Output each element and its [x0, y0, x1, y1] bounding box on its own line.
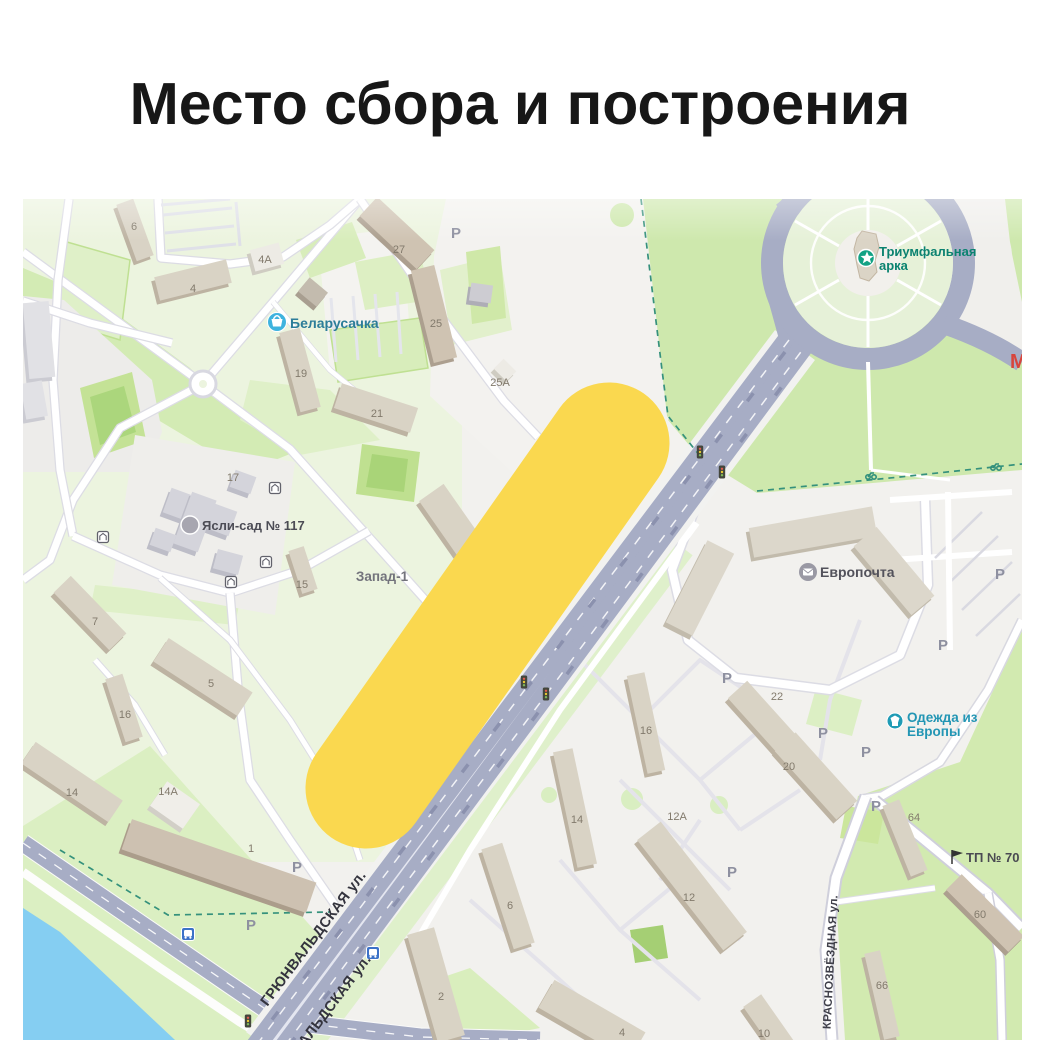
- svg-text:14: 14: [571, 814, 583, 826]
- svg-text:7: 7: [92, 616, 98, 628]
- svg-text:P: P: [818, 725, 828, 742]
- svg-text:4А: 4А: [258, 254, 272, 266]
- svg-text:14А: 14А: [158, 786, 178, 798]
- svg-text:арка: арка: [879, 258, 909, 273]
- svg-text:21: 21: [371, 408, 383, 420]
- svg-text:16: 16: [119, 709, 131, 721]
- svg-text:М: М: [1010, 351, 1022, 373]
- svg-text:P: P: [292, 859, 302, 876]
- svg-text:10: 10: [758, 1028, 770, 1040]
- svg-text:15: 15: [296, 579, 308, 591]
- svg-text:Триумфальная: Триумфальная: [879, 244, 976, 259]
- svg-text:1: 1: [248, 843, 254, 855]
- svg-text:P: P: [861, 744, 871, 761]
- svg-text:12: 12: [683, 892, 695, 904]
- svg-text:P: P: [938, 637, 948, 654]
- svg-text:P: P: [722, 670, 732, 687]
- svg-text:20: 20: [783, 761, 795, 773]
- svg-text:27: 27: [393, 244, 405, 256]
- svg-text:Ясли-сад № 117: Ясли-сад № 117: [202, 518, 305, 533]
- svg-text:64: 64: [908, 812, 920, 824]
- svg-text:17: 17: [227, 472, 239, 484]
- svg-text:Беларусачка: Беларусачка: [290, 315, 379, 331]
- svg-text:Европы: Европы: [907, 724, 960, 739]
- svg-text:14: 14: [66, 787, 78, 799]
- svg-text:16: 16: [640, 725, 652, 737]
- svg-text:4: 4: [190, 283, 196, 295]
- svg-text:Европочта: Европочта: [820, 564, 895, 580]
- svg-text:25А: 25А: [490, 377, 510, 389]
- svg-text:4: 4: [619, 1027, 625, 1039]
- svg-text:P: P: [727, 864, 737, 881]
- svg-text:P: P: [246, 917, 256, 934]
- svg-text:5: 5: [208, 678, 214, 690]
- svg-text:6: 6: [507, 900, 513, 912]
- svg-text:P: P: [871, 798, 881, 815]
- svg-text:P: P: [995, 566, 1005, 583]
- svg-text:ТП № 70: ТП № 70: [966, 850, 1019, 865]
- svg-text:Одежда из: Одежда из: [907, 710, 978, 725]
- svg-text:Запад-1: Запад-1: [356, 569, 409, 584]
- svg-text:19: 19: [295, 368, 307, 380]
- svg-text:2: 2: [438, 991, 444, 1003]
- svg-text:66: 66: [876, 980, 888, 992]
- svg-text:60: 60: [974, 909, 986, 921]
- svg-text:25: 25: [430, 318, 442, 330]
- svg-text:12А: 12А: [667, 811, 687, 823]
- svg-text:22: 22: [771, 691, 783, 703]
